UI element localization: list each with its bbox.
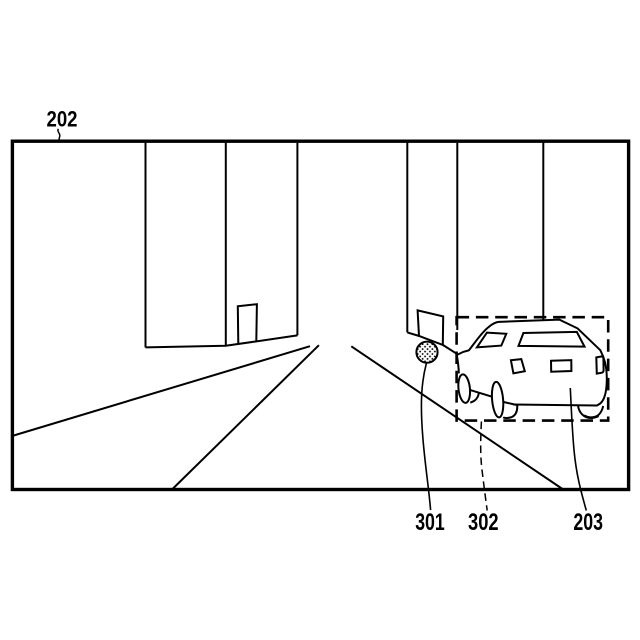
svg-text:202: 202	[47, 107, 78, 132]
svg-text:301: 301	[415, 509, 445, 536]
svg-text:203: 203	[573, 509, 603, 536]
svg-text:302: 302	[468, 509, 499, 536]
